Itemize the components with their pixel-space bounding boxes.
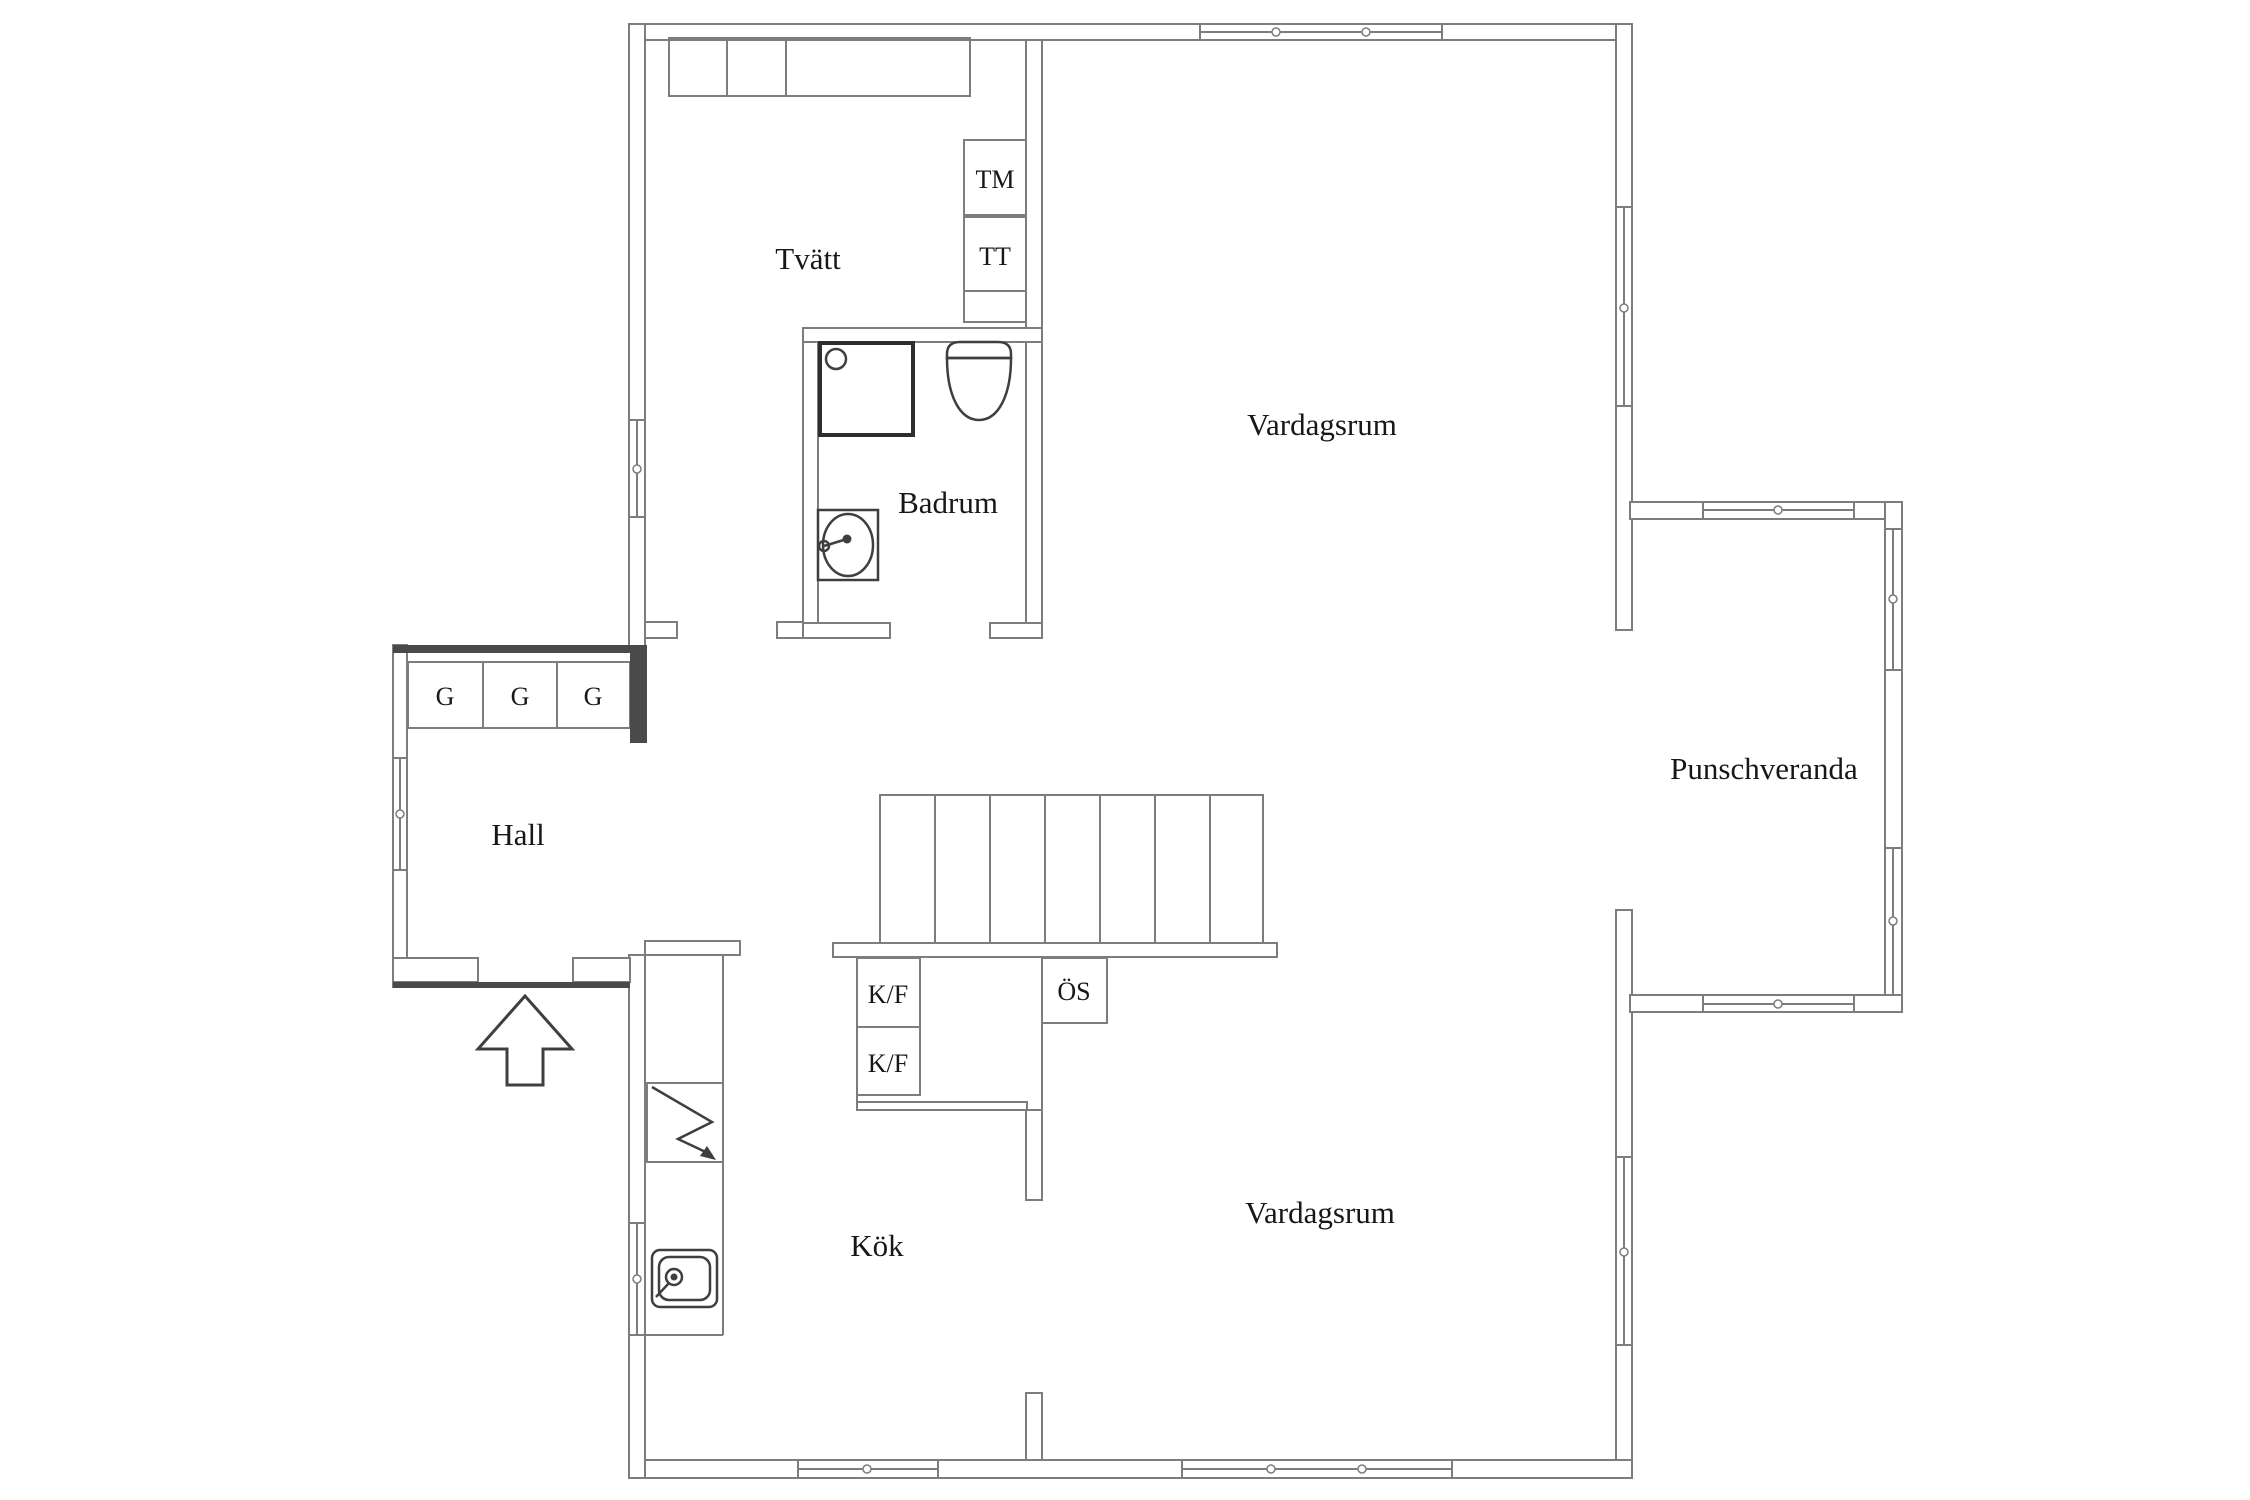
toilet-tank [947, 342, 1011, 358]
shower [820, 343, 913, 435]
window-veranda-bottom [1703, 995, 1854, 1012]
shower-tray [820, 343, 913, 435]
label-open-shelf: ÖS [1057, 977, 1090, 1006]
sink-drain-dot [671, 1274, 678, 1281]
hall-wall-right-dark [630, 645, 647, 743]
room-label-living-room-lower: Vardagsrum [1245, 1195, 1395, 1230]
label-tumble-dryer: TT [979, 242, 1011, 271]
label-fridge-freezer-2: K/F [868, 1049, 908, 1078]
toilet-bowl [947, 358, 1011, 420]
room-label-hall: Hall [491, 817, 544, 852]
window-bottom-kitchen [798, 1460, 938, 1478]
laundry-door-jamb-left [645, 622, 677, 638]
laundry-door-jamb-right [777, 622, 803, 638]
stairs [833, 795, 1277, 957]
window-right-upper [1616, 207, 1632, 406]
window-veranda-right-upper [1885, 529, 1902, 670]
room-label-bathroom: Badrum [898, 485, 998, 520]
floor-plan: Tvätt Badrum Vardagsrum Punschveranda Ha… [0, 0, 2250, 1500]
kitchen-livingroom-wall-lower [1026, 1393, 1042, 1460]
toilet [947, 342, 1011, 420]
window-top-livingroom [1200, 24, 1442, 40]
hall-wall-bottom-left-jamb [393, 958, 478, 982]
exterior-wall-left-upper [629, 24, 645, 652]
window-veranda-top [1703, 502, 1854, 519]
exterior-wall-left-lower [629, 955, 645, 1478]
window-laundry-left [629, 420, 645, 517]
room-label-living-room-upper: Vardagsrum [1247, 407, 1397, 442]
window-bottom-livingroom [1182, 1460, 1452, 1478]
stove-icon [652, 1087, 712, 1155]
bathroom-sink [818, 510, 878, 580]
window-kitchen-left [629, 1223, 645, 1335]
hall-threshold-dark [393, 982, 630, 988]
label-fridge-freezer-1: K/F [868, 980, 908, 1009]
laundry-shelf-box [964, 291, 1026, 322]
entrance-arrow-icon [478, 996, 572, 1085]
window-hall-left [393, 758, 407, 870]
bathroom-wall-bottom-right [990, 623, 1042, 638]
label-wardrobe-3: G [584, 682, 603, 711]
room-label-punch-veranda: Punschveranda [1670, 751, 1858, 786]
hall-wall-bottom-right-jamb [573, 958, 630, 982]
kitchen-sink [652, 1250, 717, 1307]
label-wardrobe-1: G [436, 682, 455, 711]
label-wardrobe-2: G [511, 682, 530, 711]
bathroom-wall-top [803, 328, 1042, 342]
stove-arrow-icon [700, 1146, 716, 1160]
floor-plan-page: Tvätt Badrum Vardagsrum Punschveranda Ha… [0, 0, 2250, 1500]
kitchen-livingroom-wall-upper [1026, 1110, 1042, 1200]
sink-faucet-dot [843, 535, 852, 544]
laundry-closet-row [669, 38, 970, 96]
bathroom-wall-left [803, 328, 818, 638]
bathroom-wall-bottom-left [803, 623, 890, 638]
exterior-wall-bottom [629, 1460, 1632, 1478]
stairs-outline [880, 795, 1263, 943]
room-label-laundry: Tvätt [775, 241, 841, 276]
stairs-landing-strip [833, 943, 1277, 957]
hall-wall-top-dark [393, 645, 632, 653]
window-right-lower [1616, 1157, 1632, 1345]
room-label-kitchen: Kök [850, 1228, 904, 1263]
label-washing-machine: TM [976, 165, 1015, 194]
kitchen-wall-north-cap [645, 941, 740, 955]
window-veranda-right-lower [1885, 848, 1902, 995]
kitchen-wall-nook-bottom [857, 1102, 1027, 1110]
